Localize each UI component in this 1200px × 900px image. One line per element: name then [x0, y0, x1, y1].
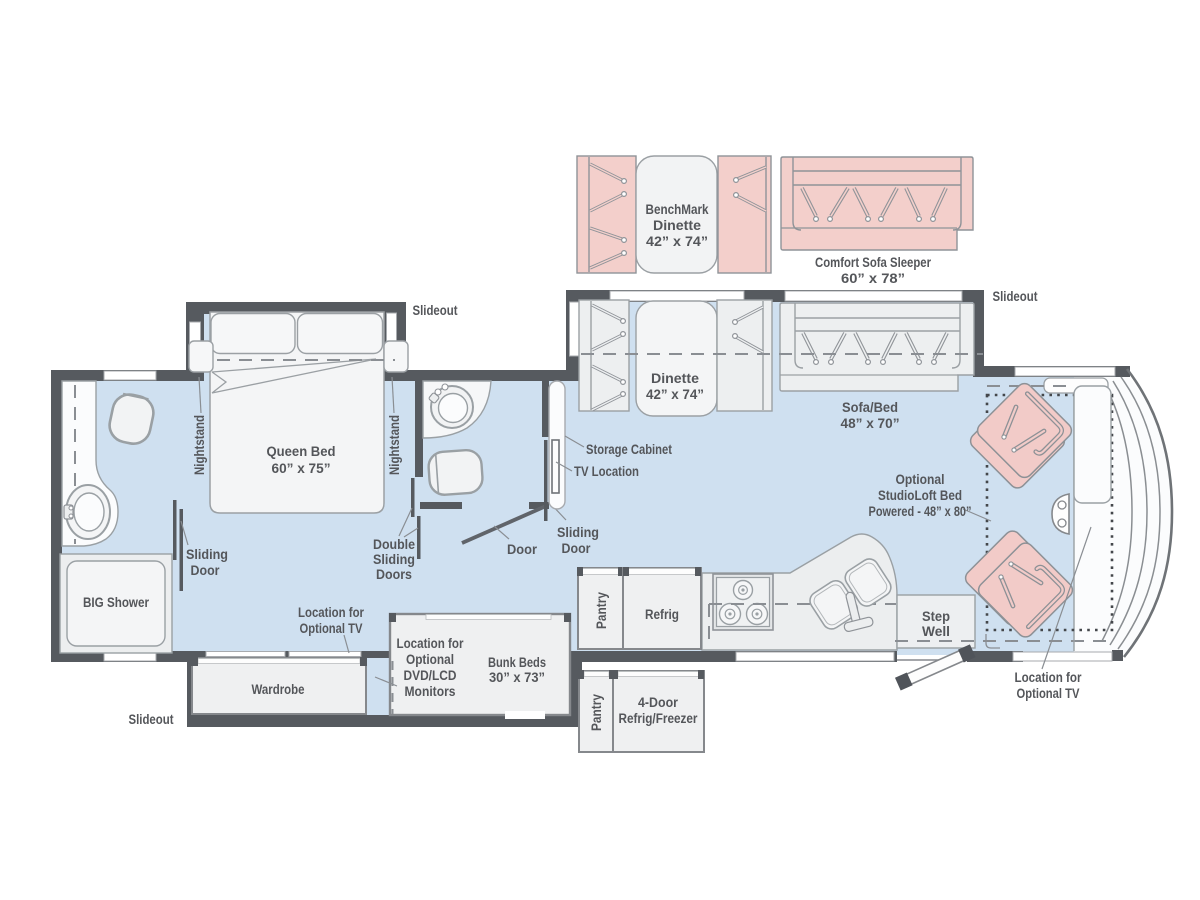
svg-text:Door: Door: [191, 563, 221, 578]
svg-text:Dinette: Dinette: [651, 371, 700, 386]
svg-text:Comfort Sofa Sleeper: Comfort Sofa Sleeper: [815, 255, 932, 270]
svg-text:DVD/LCD: DVD/LCD: [404, 668, 457, 683]
svg-text:Sliding: Sliding: [186, 547, 228, 562]
svg-text:Location for: Location for: [298, 605, 365, 620]
svg-text:Sliding: Sliding: [557, 525, 599, 540]
svg-text:Dinette: Dinette: [653, 218, 702, 233]
svg-text:60” x 75”: 60” x 75”: [272, 461, 331, 476]
svg-text:BenchMark: BenchMark: [646, 202, 709, 217]
svg-text:Bunk Beds: Bunk Beds: [488, 655, 546, 670]
svg-text:Step: Step: [922, 609, 950, 624]
svg-text:Nightstand: Nightstand: [387, 415, 402, 475]
svg-text:Optional TV: Optional TV: [1017, 686, 1080, 701]
svg-text:Sofa/Bed: Sofa/Bed: [842, 400, 898, 415]
svg-text:Sliding: Sliding: [373, 552, 415, 567]
svg-text:Double: Double: [373, 537, 415, 552]
svg-text:Slideout: Slideout: [993, 289, 1038, 304]
svg-text:Refrig: Refrig: [645, 607, 679, 622]
svg-text:42” x 74”: 42” x 74”: [646, 234, 708, 249]
svg-text:Slideout: Slideout: [129, 712, 174, 727]
svg-text:Well: Well: [922, 624, 950, 639]
svg-text:Location for: Location for: [397, 636, 465, 651]
svg-text:Nightstand: Nightstand: [192, 415, 207, 475]
svg-text:Pantry: Pantry: [589, 694, 604, 731]
svg-text:Location for: Location for: [1015, 670, 1083, 685]
svg-text:Door: Door: [562, 541, 592, 556]
svg-text:StudioLoft Bed: StudioLoft Bed: [878, 488, 962, 503]
svg-text:Optional TV: Optional TV: [300, 621, 363, 636]
svg-text:Pantry: Pantry: [594, 592, 609, 629]
svg-text:48” x 70”: 48” x 70”: [841, 416, 900, 431]
svg-text:30” x 73”: 30” x 73”: [489, 670, 545, 685]
svg-text:4-Door: 4-Door: [638, 695, 679, 710]
svg-text:Queen Bed: Queen Bed: [267, 444, 336, 459]
svg-text:Optional: Optional: [406, 652, 454, 667]
svg-text:Storage Cabinet: Storage Cabinet: [586, 442, 672, 457]
svg-text:Powered - 48” x 80”: Powered - 48” x 80”: [869, 504, 972, 519]
svg-text:Monitors: Monitors: [405, 684, 456, 699]
svg-text:Optional: Optional: [896, 472, 945, 487]
svg-text:Doors: Doors: [376, 567, 412, 582]
svg-text:Wardrobe: Wardrobe: [252, 682, 305, 697]
svg-text:Slideout: Slideout: [413, 303, 458, 318]
svg-text:42” x 74”: 42” x 74”: [646, 387, 704, 402]
svg-text:Door: Door: [507, 542, 538, 557]
svg-text:BIG Shower: BIG Shower: [83, 595, 150, 610]
svg-text:TV Location: TV Location: [574, 464, 639, 479]
svg-text:60” x 78”: 60” x 78”: [841, 271, 905, 286]
svg-text:Refrig/Freezer: Refrig/Freezer: [619, 711, 699, 726]
